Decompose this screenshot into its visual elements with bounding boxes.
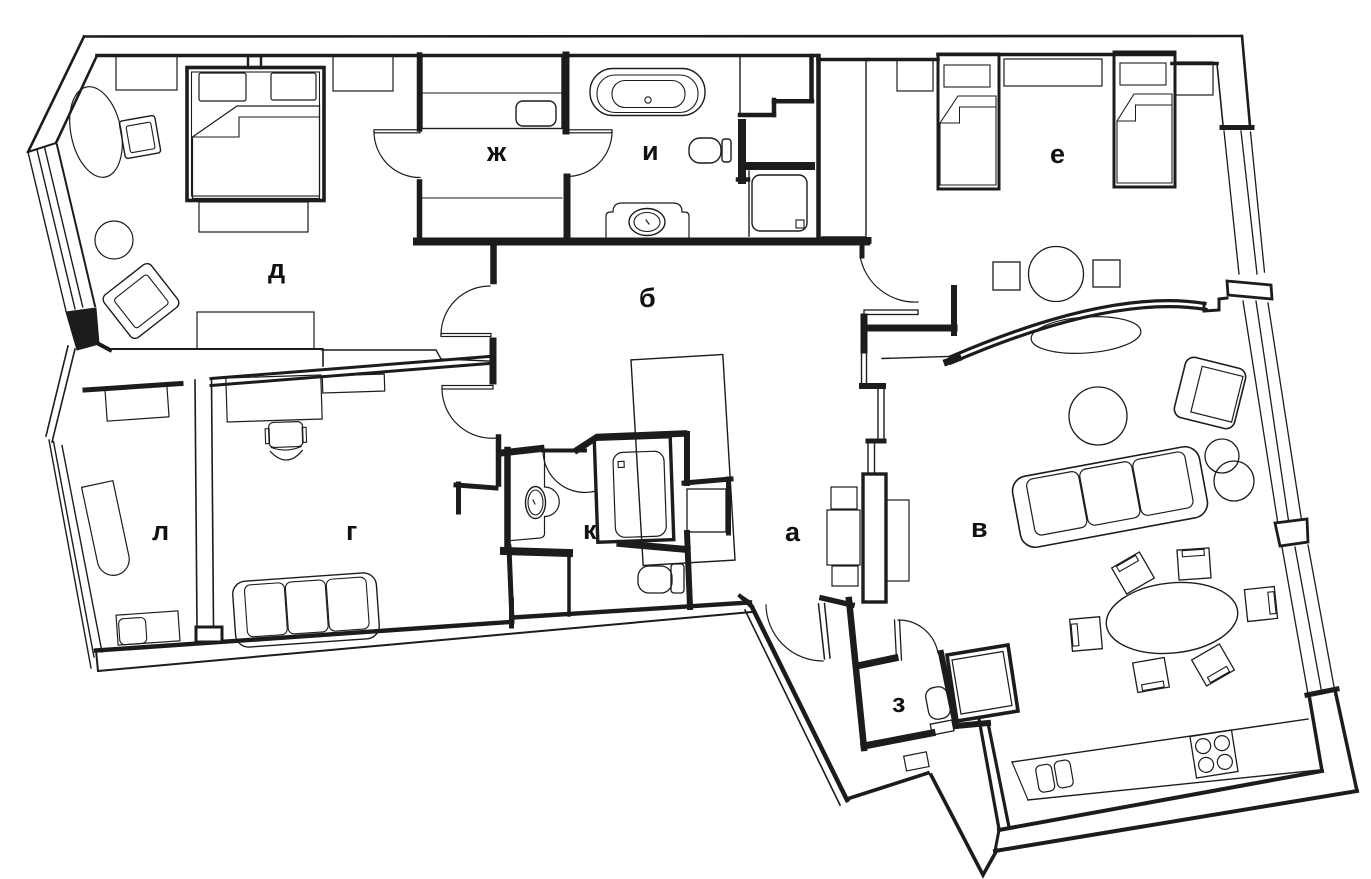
svg-text:в: в <box>971 513 988 543</box>
svg-text:к: к <box>583 515 597 545</box>
svg-text:а: а <box>785 517 801 547</box>
svg-text:л: л <box>152 516 169 546</box>
svg-text:д: д <box>268 254 285 284</box>
svg-text:ж: ж <box>486 137 507 167</box>
svg-text:з: з <box>892 688 905 718</box>
svg-text:и: и <box>642 136 659 166</box>
svg-text:б: б <box>639 283 656 313</box>
svg-text:г: г <box>346 516 357 546</box>
svg-text:е: е <box>1050 139 1065 169</box>
